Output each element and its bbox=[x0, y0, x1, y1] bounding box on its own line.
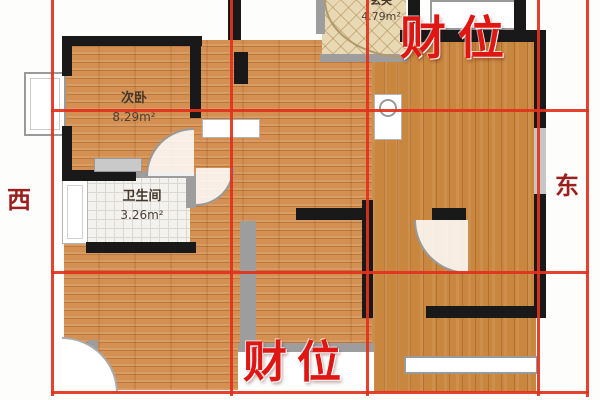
grid-line-vertical-1 bbox=[51, 0, 54, 396]
compass-east: 东 bbox=[555, 166, 579, 201]
wealth-position-bottom: 财位 bbox=[243, 326, 351, 390]
bay-window bbox=[24, 72, 66, 136]
grid-line-vertical-5 bbox=[586, 0, 589, 397]
wall-segment bbox=[190, 36, 201, 118]
bathroom-name: 卫生间 bbox=[96, 188, 188, 207]
grid-line-vertical-3 bbox=[366, 0, 369, 396]
window-band-bottom-right bbox=[404, 356, 538, 374]
desk bbox=[94, 158, 142, 172]
wall-segment bbox=[432, 208, 466, 220]
grid-line-horizontal-1 bbox=[51, 109, 589, 112]
wall-segment bbox=[86, 242, 196, 253]
right-wall-window bbox=[534, 128, 546, 194]
compass-west: 西 bbox=[7, 180, 31, 215]
wall-segment bbox=[234, 52, 248, 84]
left-wall-window bbox=[62, 180, 88, 244]
bathroom-label: 卫生间 3.26m² bbox=[96, 188, 188, 224]
bathroom-area: 3.26m² bbox=[96, 207, 188, 224]
grid-line-vertical-4 bbox=[537, 0, 540, 396]
wall-segment bbox=[62, 36, 202, 46]
washer-drum-icon bbox=[379, 99, 397, 117]
grid-line-horizontal-3 bbox=[51, 391, 589, 394]
grid-line-vertical-2 bbox=[230, 0, 233, 396]
wall-segment bbox=[426, 306, 546, 318]
washing-machine bbox=[374, 94, 402, 140]
grid-line-horizontal-2 bbox=[51, 271, 589, 274]
wall-segment bbox=[296, 208, 368, 220]
wall-segment-gray bbox=[240, 221, 256, 343]
wealth-position-top-right: 财位 bbox=[400, 2, 516, 68]
bedroom-name: 次卧 bbox=[92, 90, 176, 109]
wall-segment bbox=[62, 36, 72, 76]
floor-plan-image: 次卧 8.29m² 卫生间 3.26m² 玄关 4.79m² 财位 财位 西 东 bbox=[0, 0, 600, 400]
